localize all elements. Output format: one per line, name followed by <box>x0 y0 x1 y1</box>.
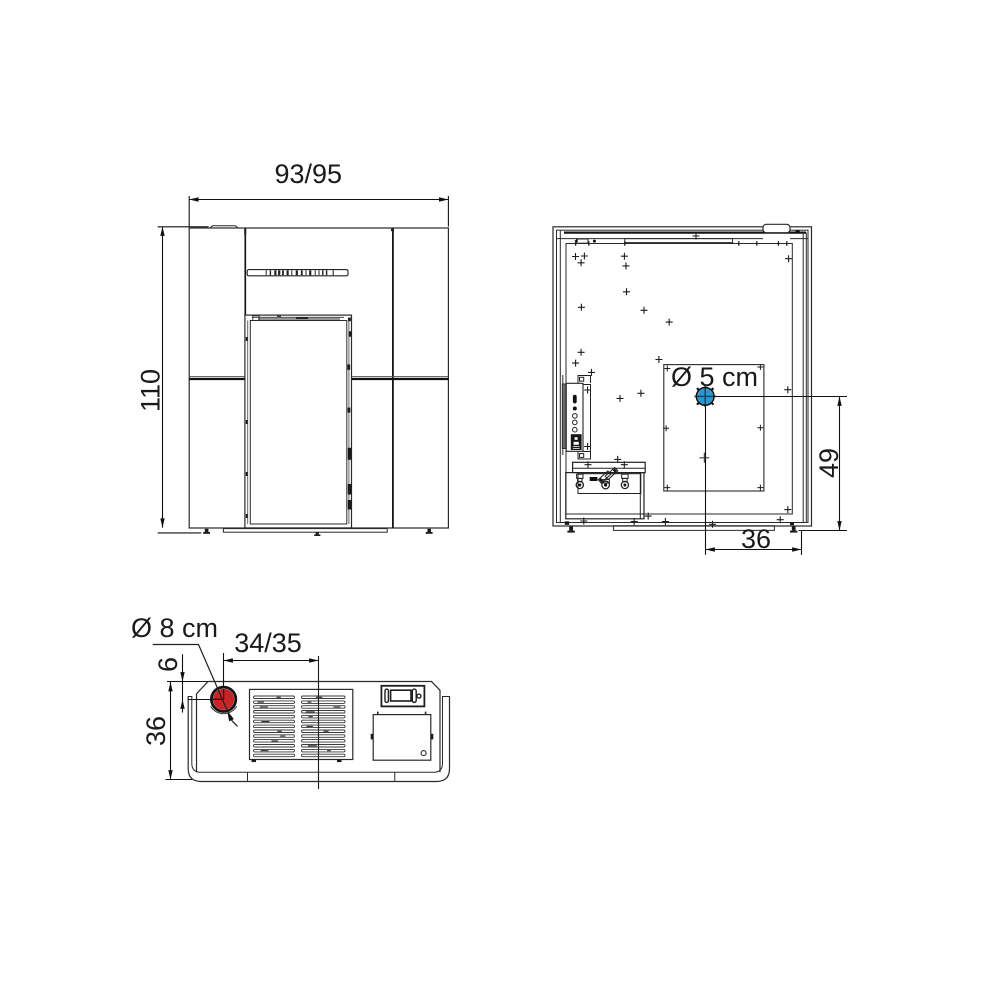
svg-text:36: 36 <box>141 716 171 746</box>
svg-text:36: 36 <box>741 524 771 554</box>
svg-text:34/35: 34/35 <box>234 628 302 658</box>
svg-text:Ø 5 cm: Ø 5 cm <box>671 362 758 392</box>
svg-text:Ø 8 cm: Ø 8 cm <box>131 613 218 643</box>
svg-text:6: 6 <box>153 657 183 672</box>
svg-text:49: 49 <box>814 448 844 478</box>
svg-text:93/95: 93/95 <box>275 159 343 189</box>
svg-text:110: 110 <box>136 369 166 412</box>
